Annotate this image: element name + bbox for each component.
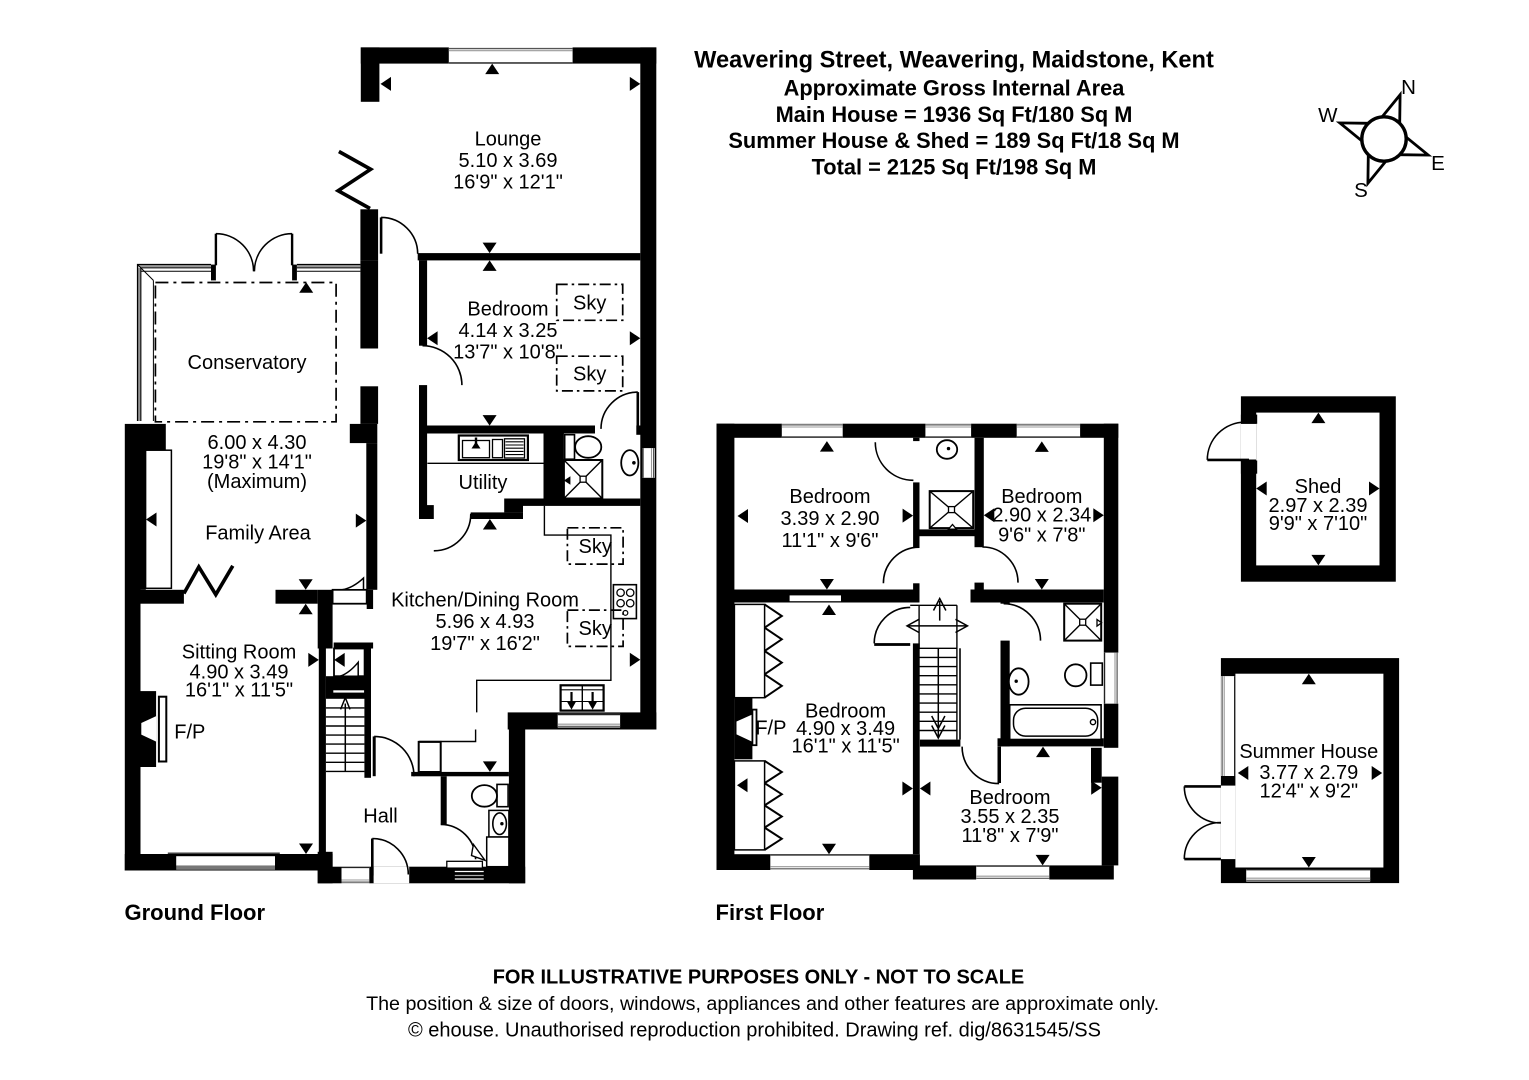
svg-text:13'7" x 10'8": 13'7" x 10'8" [453, 342, 563, 364]
svg-text:The position & size of doors,: The position & size of doors, windows, a… [366, 993, 1159, 1015]
svg-text:5.10 x 3.69: 5.10 x 3.69 [459, 150, 558, 172]
svg-text:Summer House: Summer House [1239, 741, 1378, 763]
svg-text:Summer House & Shed = 189 Sq F: Summer House & Shed = 189 Sq Ft/18 Sq M [728, 128, 1179, 153]
svg-text:FOR ILLUSTRATIVE PURPOSES ONLY: FOR ILLUSTRATIVE PURPOSES ONLY - NOT TO … [493, 967, 1025, 989]
svg-text:Sitting Room: Sitting Room [182, 642, 297, 664]
svg-text:2.90 x 2.34: 2.90 x 2.34 [992, 505, 1091, 527]
svg-text:16'1" x 11'5": 16'1" x 11'5" [791, 736, 899, 758]
svg-text:9'6" x 7'8": 9'6" x 7'8" [998, 525, 1085, 547]
svg-text:Bedroom: Bedroom [467, 298, 548, 320]
svg-text:16'9" x 12'1": 16'9" x 12'1" [453, 172, 563, 194]
svg-text:Sky: Sky [579, 618, 612, 640]
svg-text:Lounge: Lounge [475, 129, 542, 151]
svg-text:F/P: F/P [174, 722, 205, 744]
svg-text:N: N [1401, 76, 1416, 99]
svg-text:First Floor: First Floor [716, 900, 825, 925]
svg-text:3.39 x 2.90: 3.39 x 2.90 [781, 508, 880, 530]
svg-text:E: E [1431, 152, 1445, 175]
svg-text:Weavering Street, Weavering, M: Weavering Street, Weavering, Maidstone, … [694, 48, 1214, 74]
svg-text:Sky: Sky [573, 364, 606, 386]
svg-text:Ground Floor: Ground Floor [125, 900, 266, 925]
svg-text:Total = 2125 Sq Ft/198 Sq M: Total = 2125 Sq Ft/198 Sq M [812, 154, 1097, 179]
svg-text:Hall: Hall [363, 805, 397, 827]
svg-text:Main House = 1936 Sq Ft/180 Sq: Main House = 1936 Sq Ft/180 Sq M [776, 102, 1133, 127]
svg-text:16'1" x 11'5": 16'1" x 11'5" [185, 680, 293, 702]
svg-text:19'7" x 16'2": 19'7" x 16'2" [430, 633, 540, 655]
svg-text:Utility: Utility [459, 472, 508, 494]
svg-text:Conservatory: Conservatory [188, 352, 307, 374]
svg-text:5.96 x 4.93: 5.96 x 4.93 [436, 611, 535, 633]
svg-text:Sky: Sky [573, 292, 606, 314]
svg-text:(Maximum): (Maximum) [207, 471, 307, 493]
svg-text:11'1" x 9'6": 11'1" x 9'6" [781, 530, 878, 552]
svg-text:9'9" x 7'10": 9'9" x 7'10" [1269, 513, 1368, 535]
svg-text:© ehouse. Unauthorised reprodu: © ehouse. Unauthorised reproduction proh… [408, 1020, 1101, 1042]
svg-text:Bedroom: Bedroom [789, 486, 870, 508]
svg-text:W: W [1318, 104, 1338, 127]
svg-text:Approximate Gross Internal Are: Approximate Gross Internal Area [784, 76, 1126, 101]
svg-text:S: S [1354, 179, 1368, 202]
svg-text:4.14 x 3.25: 4.14 x 3.25 [459, 320, 558, 342]
svg-text:12'4" x 9'2": 12'4" x 9'2" [1260, 781, 1359, 803]
svg-text:Kitchen/Dining Room: Kitchen/Dining Room [391, 590, 579, 612]
svg-text:11'8" x 7'9": 11'8" x 7'9" [961, 825, 1058, 847]
svg-text:F/P: F/P [755, 718, 786, 740]
svg-text:Family Area: Family Area [205, 523, 311, 545]
svg-text:Sky: Sky [579, 536, 612, 558]
